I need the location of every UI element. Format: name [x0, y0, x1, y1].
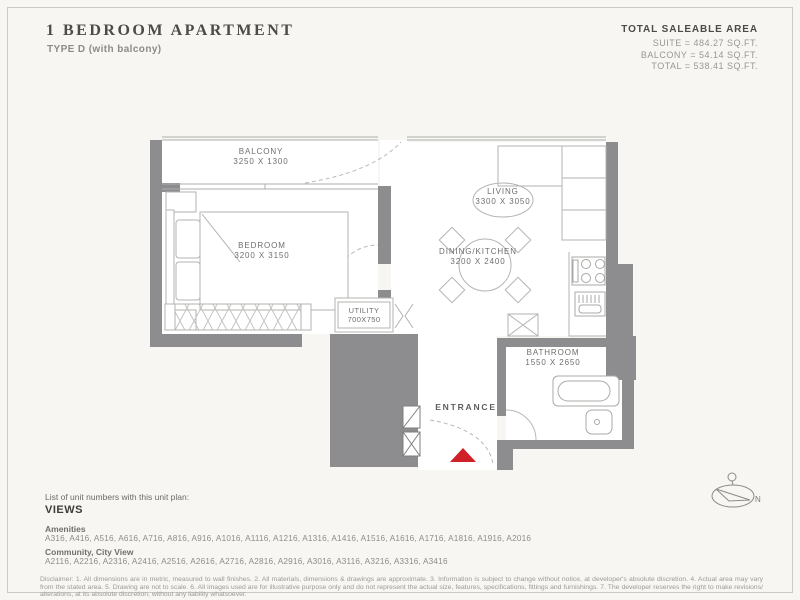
- total-area: TOTAL = 538.41 SQ.FT.: [621, 61, 758, 73]
- floor-plan: BALCONY 3250 X 1300 BEDROOM 3200 X 3150 …: [145, 100, 675, 480]
- entrance-label: ENTRANCE: [435, 402, 497, 412]
- views-heading: VIEWS: [45, 504, 83, 516]
- amenities-unit-numbers: A316, A416, A516, A616, A716, A816, A916…: [45, 534, 531, 543]
- floorplan-page: 1 BEDROOM APARTMENT TYPE D (with balcony…: [0, 0, 800, 600]
- amenities-group-label: Amenities: [45, 524, 86, 534]
- compass-icon: [703, 468, 773, 518]
- area-summary-heading: TOTAL SALEABLE AREA: [621, 24, 758, 35]
- balcony-area: BALCONY = 54.14 SQ.FT.: [621, 50, 758, 62]
- page-title: 1 BEDROOM APARTMENT: [46, 22, 294, 40]
- unit-list-intro: List of unit numbers with this unit plan…: [45, 492, 189, 502]
- suite-area: SUITE = 484.27 SQ.FT.: [621, 38, 758, 50]
- bathtub-icon: [553, 376, 619, 406]
- sink-icon: [575, 292, 605, 316]
- bedroom-label: BEDROOM 3200 X 3150: [234, 241, 289, 261]
- disclaimer-text: Disclaimer: 1. All dimensions are in met…: [40, 576, 763, 599]
- living-label: LIVING 3300 X 3050: [475, 187, 530, 207]
- dining-kitchen-label: DINING/KITCHEN 3200 X 2400: [439, 247, 517, 267]
- community-group-label: Community, City View: [45, 547, 133, 557]
- area-summary: TOTAL SALEABLE AREA SUITE = 484.27 SQ.FT…: [621, 24, 758, 73]
- unit-type-subtitle: TYPE D (with balcony): [47, 44, 162, 55]
- wardrobe-icon: [165, 304, 311, 330]
- utility-label: UTILITY 700X750: [348, 306, 381, 324]
- compass-north-label: N: [755, 495, 761, 504]
- appliance-icon: [508, 314, 538, 336]
- stove-icon: [572, 257, 605, 285]
- floor-plan-drawing: [145, 100, 675, 480]
- community-unit-numbers: A2116, A2216, A2316, A2416, A2516, A2616…: [45, 557, 448, 566]
- balcony-label: BALCONY 3250 X 1300: [233, 147, 288, 167]
- bathroom-label: BATHROOM 1550 X 2650: [525, 348, 580, 368]
- bathroom-sink-icon: [586, 410, 612, 434]
